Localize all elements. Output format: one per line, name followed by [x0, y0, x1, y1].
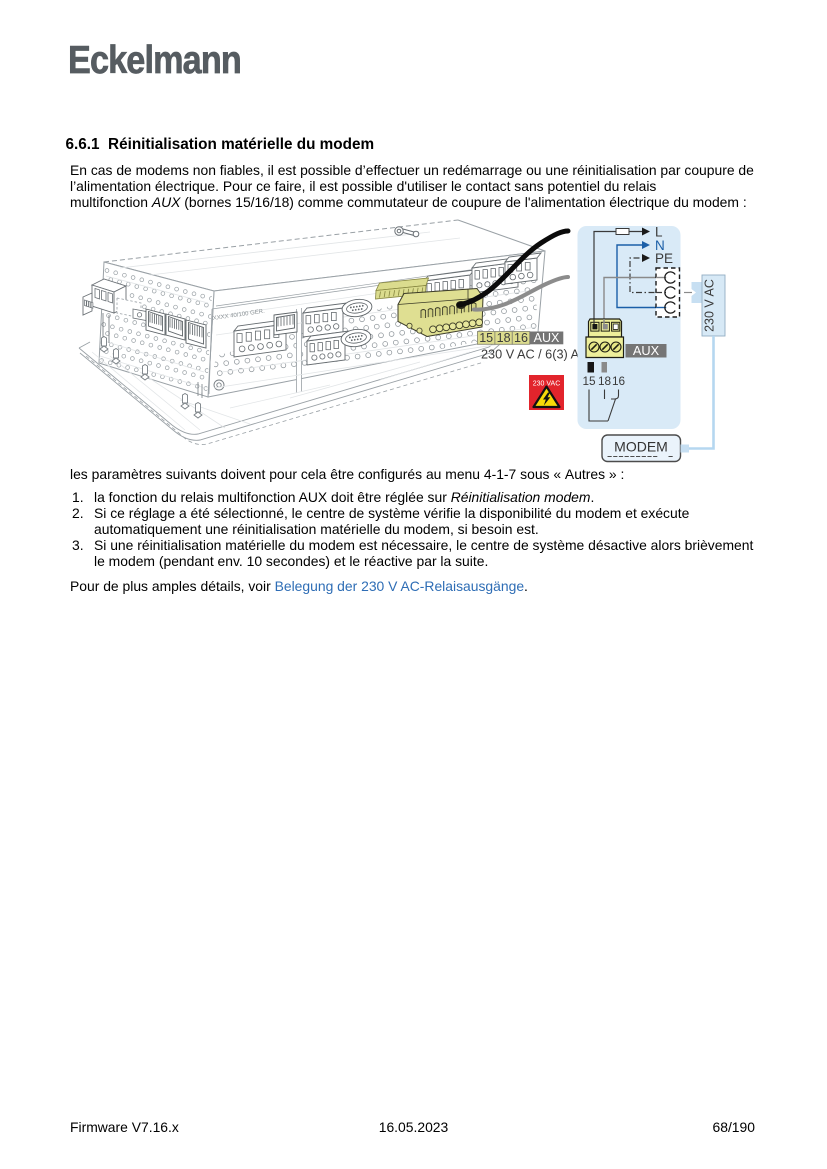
svg-text:15: 15	[582, 374, 596, 388]
svg-text:PE: PE	[655, 251, 673, 266]
svg-text:16: 16	[612, 374, 626, 388]
svg-text:230 V AC / 6(3) A: 230 V AC / 6(3) A	[481, 348, 580, 362]
svg-text:MODEM: MODEM	[614, 439, 668, 455]
svg-text:AUX: AUX	[633, 343, 660, 358]
svg-text:230 V AC: 230 V AC	[703, 279, 717, 332]
svg-text:18: 18	[598, 374, 612, 388]
svg-text:18: 18	[497, 331, 511, 345]
svg-text:AUX: AUX	[534, 331, 560, 345]
svg-text:15: 15	[479, 331, 493, 345]
svg-text:16: 16	[514, 331, 528, 345]
